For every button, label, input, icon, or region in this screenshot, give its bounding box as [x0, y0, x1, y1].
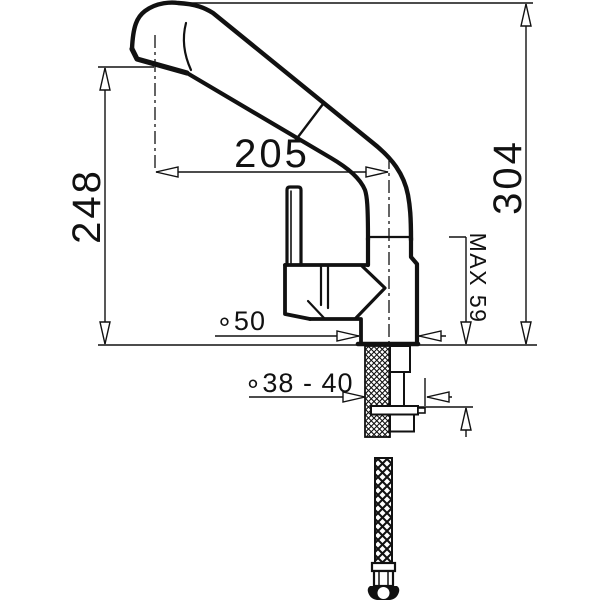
mounting-hole-diameter-label: ∘38 - 40	[245, 368, 354, 398]
base-diameter-label: ∘50	[216, 306, 266, 336]
hose-end-nut-hole	[378, 587, 390, 599]
spout-reach-dimension-label: 205	[234, 132, 310, 176]
hose-collar-rim	[372, 563, 395, 571]
threaded-shank	[365, 346, 390, 437]
mounting-nut	[390, 415, 414, 432]
faucet-technical-drawing: 205 248 304 MAX 59 ∘50 ∘38 - 40	[0, 0, 600, 600]
outlet-height-dimension-label: 248	[65, 168, 109, 244]
total-height-dimension-label: 304	[486, 139, 530, 215]
drawing-background	[0, 0, 600, 600]
braided-hose	[375, 458, 392, 563]
faucet-technical-drawing-page: 205 248 304 MAX 59 ∘50 ∘38 - 40	[0, 0, 600, 600]
max-mounting-thickness-label: MAX 59	[465, 233, 491, 324]
supply-tube	[390, 372, 404, 407]
clamp-plate-tab	[418, 408, 425, 413]
clamp-plate	[371, 406, 418, 415]
hose-collar	[374, 571, 393, 586]
shank-sleeve	[390, 346, 410, 372]
